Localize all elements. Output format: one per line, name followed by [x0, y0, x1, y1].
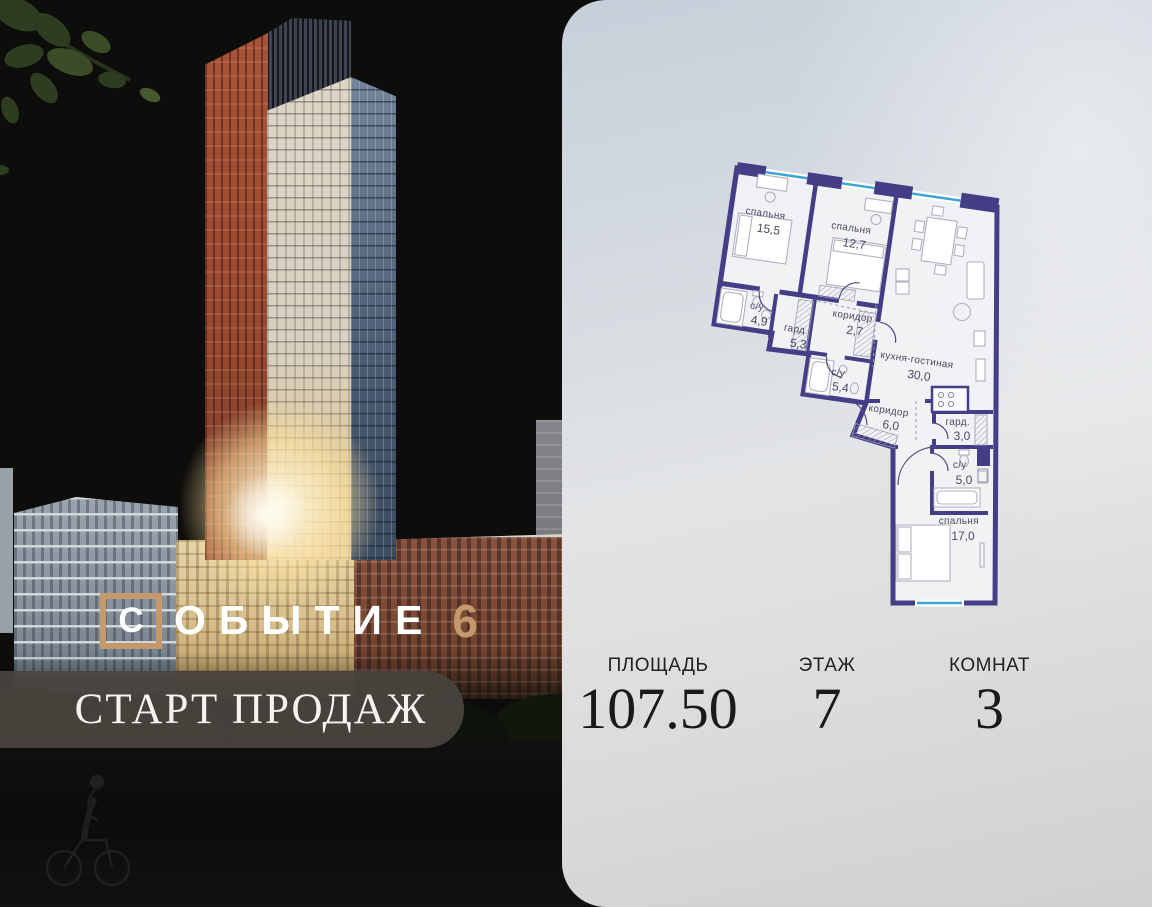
stat-rooms-label: КОМНАТ — [917, 655, 1062, 677]
cyclist-silhouette — [40, 768, 135, 893]
stat-area-value: 107.50 — [572, 679, 744, 740]
sales-start-banner: СТАРТ ПРОДАЖ — [0, 671, 464, 748]
background-building-sliver — [0, 468, 13, 633]
stat-floor-value: 7 — [767, 679, 887, 740]
brand-wordmark: С ОБЫТИЕ 6 — [100, 592, 478, 649]
tree-branch — [0, 0, 240, 200]
apartment-stats: ПЛОЩАДЬ 107.50 ЭТАЖ 7 КОМНАТ 3 — [562, 655, 1152, 765]
promo-poster: С ОБЫТИЕ 6 СТАРТ ПРОДАЖ — [0, 0, 1152, 907]
stat-area: ПЛОЩАДЬ 107.50 — [572, 655, 744, 740]
building-photo: С ОБЫТИЕ 6 СТАРТ ПРОДАЖ — [0, 0, 620, 907]
brand-letters: ОБЫТИЕ — [174, 600, 435, 641]
stat-floor-label: ЭТАЖ — [767, 655, 887, 677]
stat-rooms: КОМНАТ 3 — [917, 655, 1062, 740]
info-panel: спальня 15,5 спальня 12,7 с/у 4,9 гард. … — [562, 0, 1152, 907]
brand-boxed-letter: С — [118, 603, 143, 638]
sales-start-text: СТАРТ ПРОДАЖ — [75, 685, 428, 734]
brand-letter-frame: С — [100, 593, 162, 649]
sun-glare-core — [205, 455, 325, 575]
stat-area-label: ПЛОЩАДЬ — [572, 655, 744, 677]
brand-number: 6 — [452, 598, 478, 644]
stat-rooms-value: 3 — [917, 679, 1062, 740]
floor-plan-svg: спальня 15,5 спальня 12,7 с/у 4,9 гард. … — [690, 155, 1020, 625]
stat-floor: ЭТАЖ 7 — [767, 655, 887, 740]
